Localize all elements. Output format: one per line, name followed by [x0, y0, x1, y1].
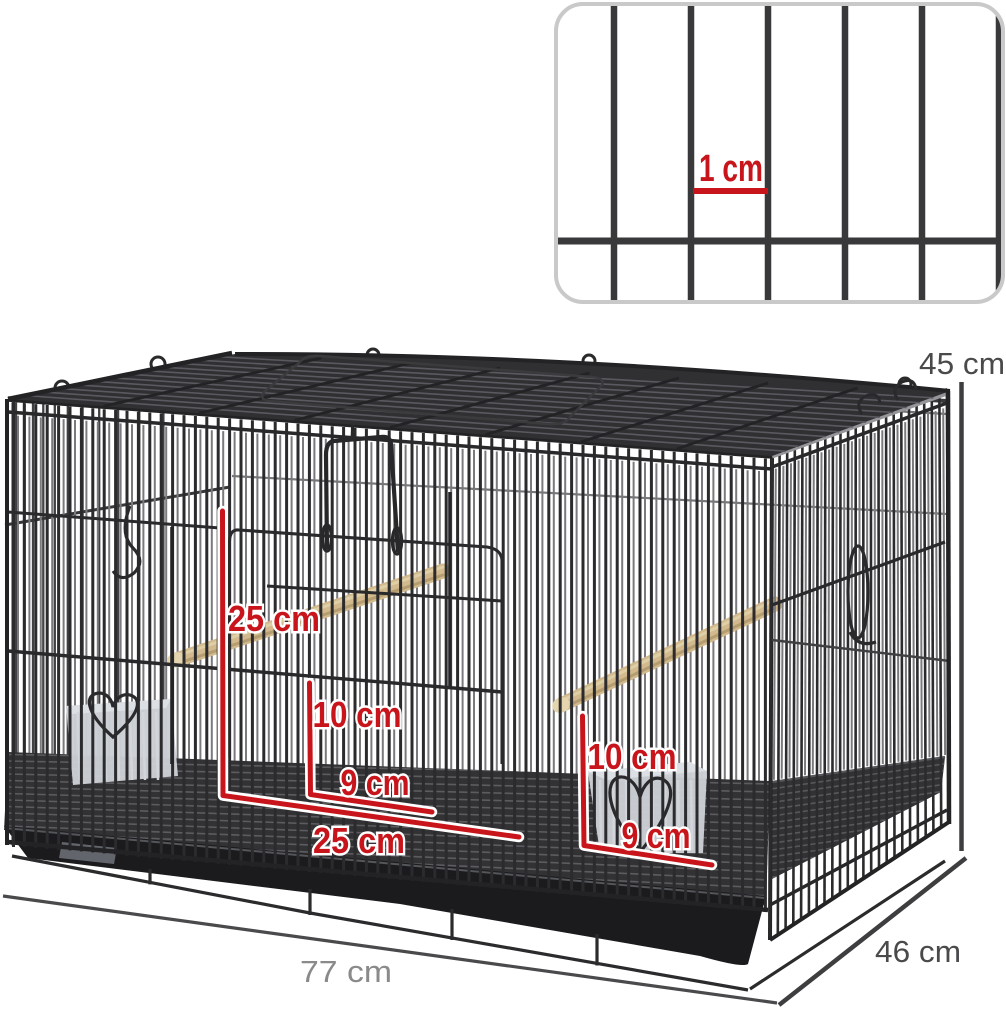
svg-text:9 cm: 9 cm: [341, 762, 410, 803]
svg-text:9 cm: 9 cm: [622, 815, 691, 856]
svg-text:45 cm: 45 cm: [919, 346, 1005, 381]
svg-text:10 cm: 10 cm: [313, 694, 402, 735]
svg-text:25 cm: 25 cm: [313, 820, 405, 861]
svg-text:25 cm: 25 cm: [228, 598, 320, 639]
svg-text:10 cm: 10 cm: [588, 736, 677, 777]
svg-text:46 cm: 46 cm: [875, 934, 961, 969]
svg-text:1 cm: 1 cm: [699, 148, 763, 190]
svg-text:77 cm: 77 cm: [300, 954, 392, 989]
